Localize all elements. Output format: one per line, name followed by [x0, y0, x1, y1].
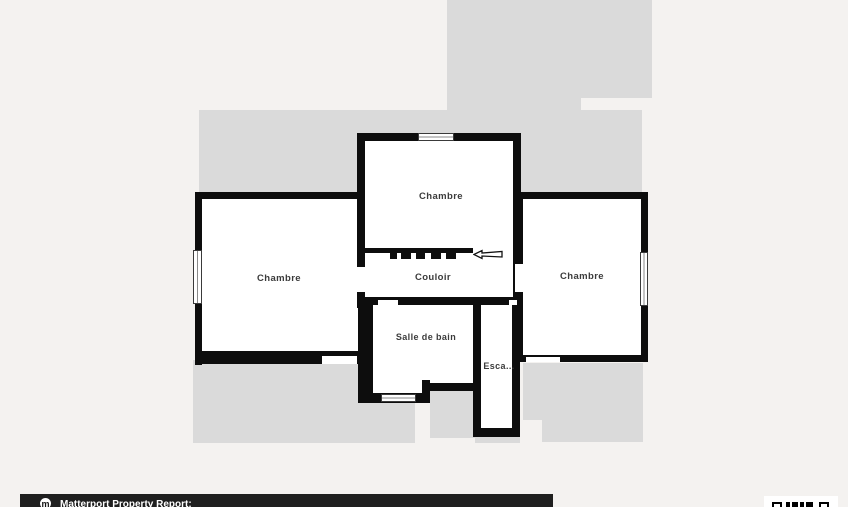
wall-segment	[422, 380, 430, 403]
footprint-shadow	[542, 420, 643, 442]
door-opening	[378, 300, 398, 305]
wall-segment	[473, 428, 520, 437]
footprint-shadow	[430, 385, 475, 438]
footprint-notch	[581, 98, 652, 110]
wall-segment	[430, 383, 473, 391]
window-symbol	[418, 133, 454, 141]
wall-artifact	[390, 253, 397, 259]
room-label-salle-de-bain: Salle de bain	[366, 330, 486, 344]
matterport-logo-icon: m	[40, 498, 51, 507]
door-opening	[509, 300, 517, 305]
wall-segment	[358, 297, 373, 403]
report-bar: m Matterport Property Report:	[20, 494, 553, 507]
room-salle-de-bain	[373, 385, 425, 393]
room-label-chambre-top: Chambre	[381, 190, 501, 204]
window-symbol	[381, 394, 416, 402]
entrance-arrow-icon	[473, 249, 503, 260]
qr-module	[792, 502, 798, 507]
window-symbol	[193, 250, 202, 304]
floorplan-page: Chambre Chambre Chambre Couloir Salle de…	[0, 0, 848, 507]
wall-artifact	[416, 253, 425, 259]
door-opening	[526, 357, 560, 362]
wall-artifact	[401, 252, 411, 259]
qr-module	[786, 502, 790, 507]
qr-module	[806, 502, 813, 507]
room-label-couloir: Couloir	[373, 271, 493, 285]
door-opening	[357, 267, 365, 292]
wall-artifact	[431, 252, 441, 259]
footprint-shadow	[523, 363, 643, 420]
room-label-escalier: Esca...	[469, 359, 529, 373]
wall-segment	[195, 192, 365, 199]
room-label-chambre-right: Chambre	[522, 270, 642, 284]
wall-artifact	[446, 253, 456, 259]
report-title: Matterport Property Report:	[60, 499, 192, 507]
room-label-chambre-left: Chambre	[219, 272, 339, 286]
door-opening	[322, 356, 357, 364]
qr-module	[800, 502, 804, 507]
footprint-shadow	[447, 0, 652, 110]
room-salle-de-bain	[373, 305, 473, 385]
qr-position-square	[772, 502, 782, 507]
wall-segment	[516, 192, 648, 199]
qr-code-card	[764, 496, 838, 507]
qr-position-square	[819, 502, 829, 507]
